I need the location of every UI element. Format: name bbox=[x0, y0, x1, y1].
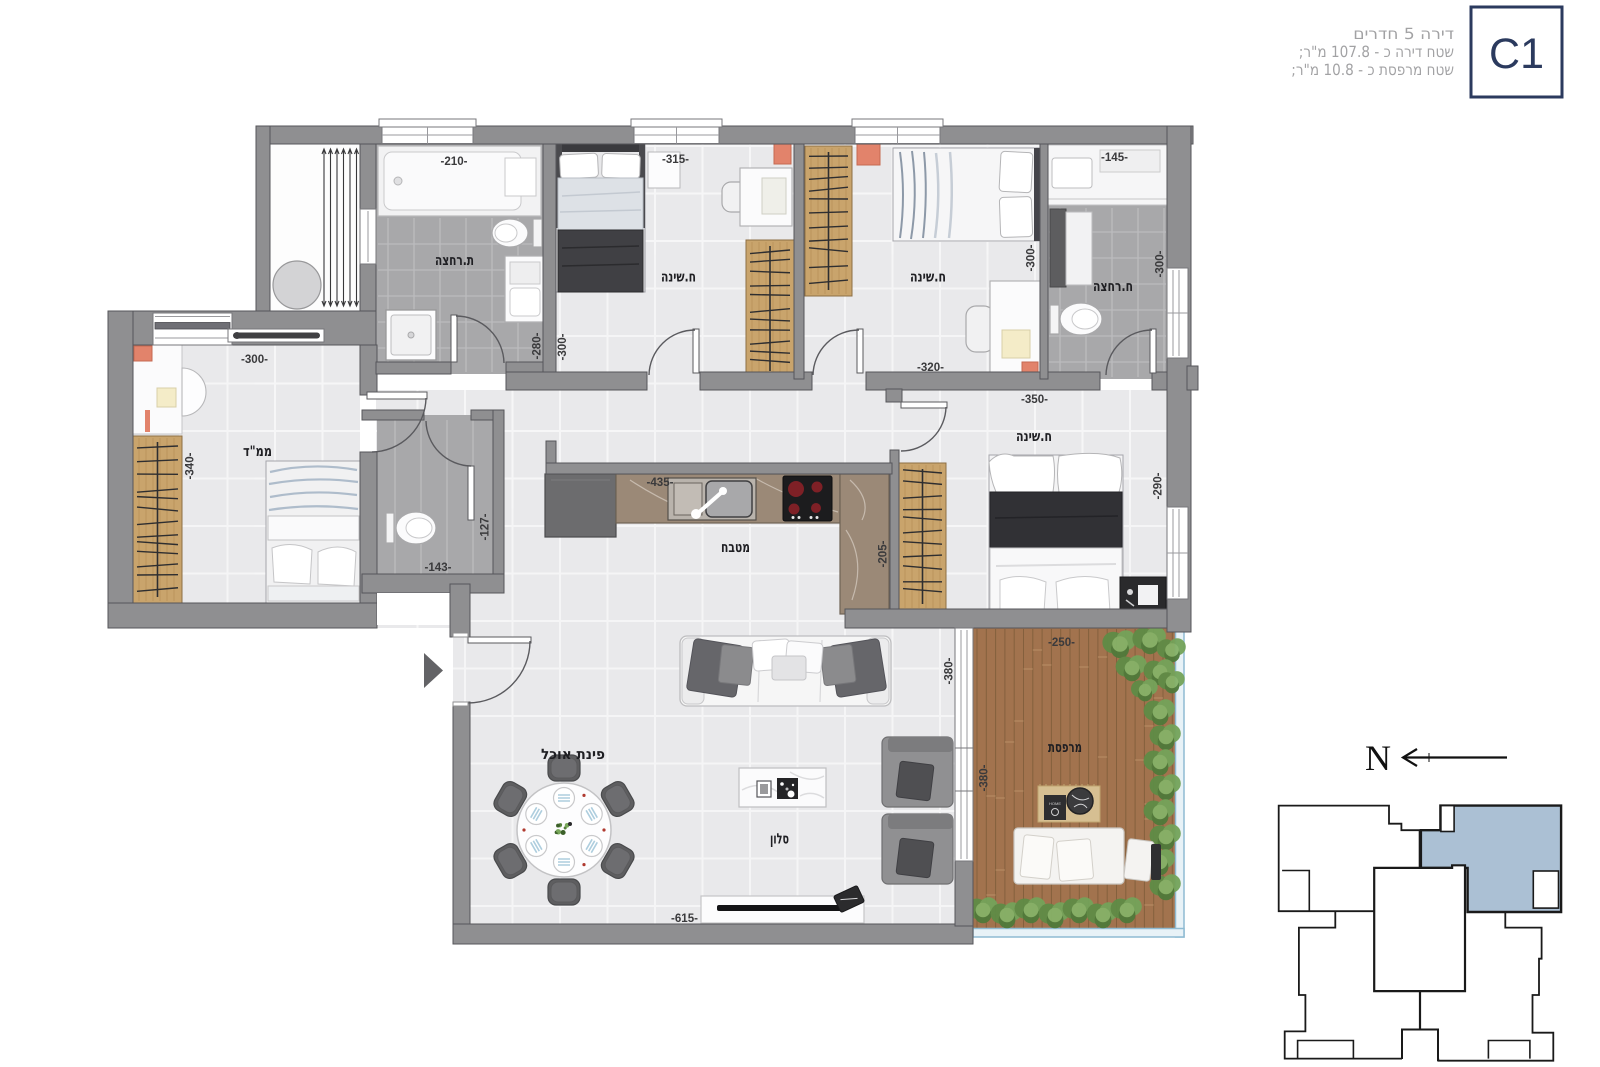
svg-text:-127-: -127- bbox=[480, 513, 492, 540]
svg-text:-300-: -300- bbox=[557, 333, 569, 360]
svg-text:-300-: -300- bbox=[241, 354, 268, 366]
svg-text:-290-: -290- bbox=[1153, 472, 1165, 499]
svg-text:-300-: -300- bbox=[1155, 250, 1167, 277]
svg-text:-300-: -300- bbox=[1026, 244, 1038, 271]
svg-text:-380-: -380- bbox=[944, 657, 956, 684]
svg-text:-280-: -280- bbox=[532, 332, 544, 359]
svg-text:-205-: -205- bbox=[878, 540, 890, 567]
svg-text:-380-: -380- bbox=[979, 764, 991, 791]
svg-text:-340-: -340- bbox=[185, 452, 197, 479]
svg-text:C1: C1 bbox=[1489, 30, 1544, 78]
svg-text:-143-: -143- bbox=[425, 562, 452, 574]
svg-text:N: N bbox=[1365, 738, 1391, 778]
svg-text:-435-: -435- bbox=[647, 477, 674, 489]
svg-text:-210-: -210- bbox=[441, 156, 468, 168]
svg-text:-315-: -315- bbox=[662, 154, 689, 166]
svg-text:-350-: -350- bbox=[1021, 394, 1048, 406]
svg-text:-320-: -320- bbox=[917, 362, 944, 374]
svg-text:-145-: -145- bbox=[1101, 152, 1128, 164]
svg-text:-615-: -615- bbox=[671, 913, 698, 925]
svg-text:HOME: HOME bbox=[1049, 801, 1061, 806]
svg-text:-250-: -250- bbox=[1048, 637, 1075, 649]
